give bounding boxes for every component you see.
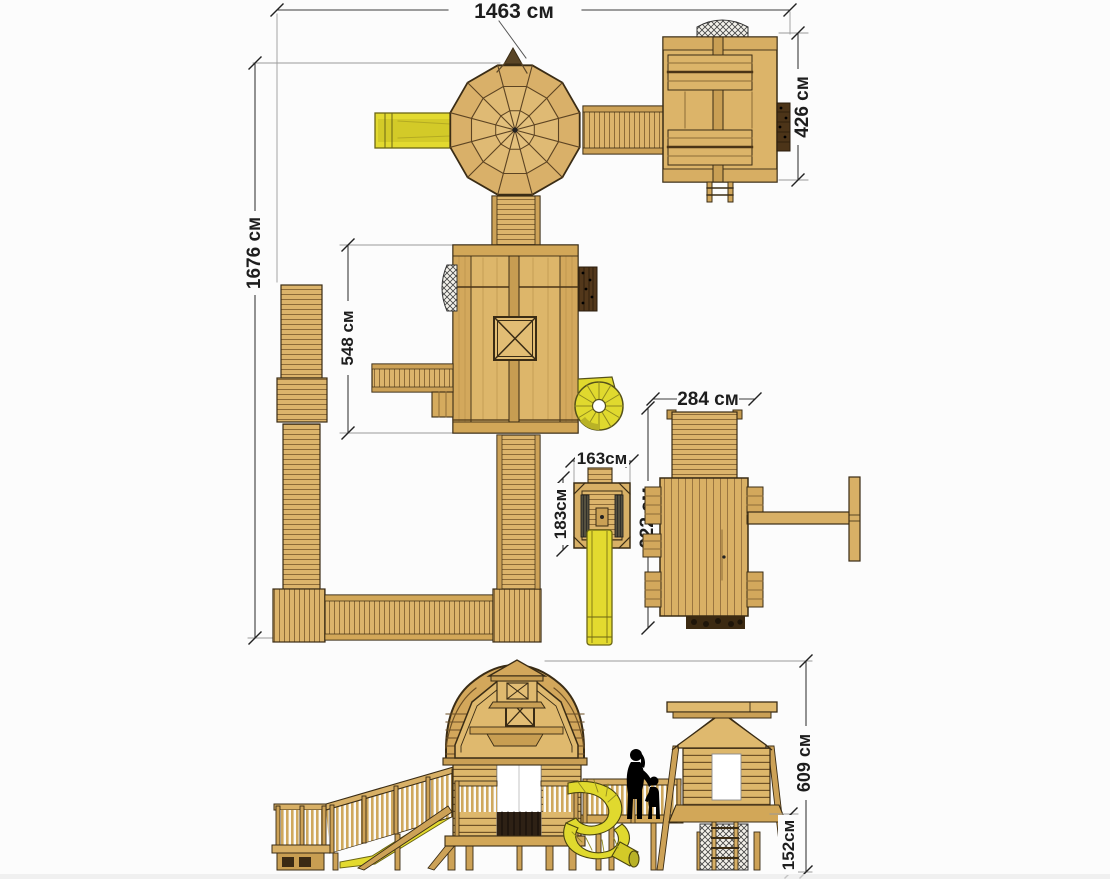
top-tower-plan xyxy=(663,20,790,202)
small-tower-slide-plan xyxy=(587,530,612,645)
label-total-height: 609 см xyxy=(794,734,814,792)
climb-wall-top-tower xyxy=(777,103,790,151)
bridge-plan xyxy=(583,106,665,154)
skylight xyxy=(494,317,536,360)
dimension-small-tower-width: 163см xyxy=(566,449,638,468)
label-main-house-depth: 548 см xyxy=(338,310,357,365)
label-deck-height: 152см xyxy=(779,820,798,870)
label-overall-depth: 1676 см xyxy=(244,217,265,289)
playground-blueprint: 1463 см 1676 см 426 см 548 см xyxy=(0,0,1110,879)
side-unit-body-plan xyxy=(660,478,748,616)
side-tower-window xyxy=(712,754,741,800)
label-small-tower-depth: 183см xyxy=(551,489,570,539)
dimension-small-tower-depth: 183см xyxy=(550,472,570,556)
label-top-tower-depth: 426 см xyxy=(792,76,813,138)
straight-slide-plan xyxy=(375,113,455,148)
side-tower-canopy xyxy=(667,702,777,718)
climb-net-house xyxy=(442,265,457,311)
label-overall-width: 1463 см xyxy=(474,0,554,23)
blueprint-canvas: 1463 см 1676 см 426 см 548 см xyxy=(0,0,1110,879)
image-bottom-edge xyxy=(0,874,1110,879)
main-tower-south-walkway xyxy=(492,196,540,245)
label-side-unit-width: 284 см xyxy=(677,389,739,410)
side-tower-deck xyxy=(669,805,786,822)
side-unit-base-detail xyxy=(686,616,745,629)
climb-wall-house xyxy=(579,267,597,311)
label-small-tower-width: 163см xyxy=(577,449,627,468)
side-unit-ramp-plan xyxy=(672,412,737,478)
barn-door-recess xyxy=(497,812,541,837)
